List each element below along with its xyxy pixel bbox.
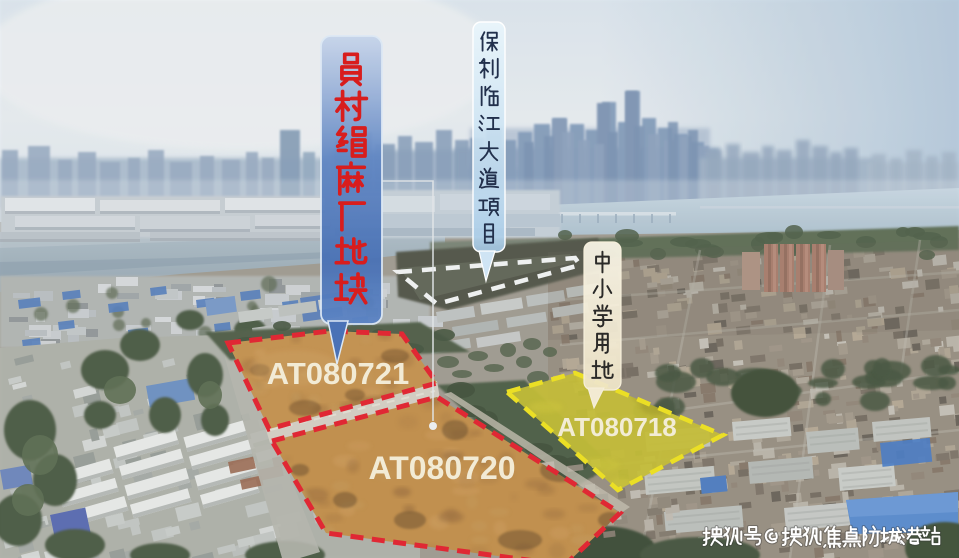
svg-text:AT080720: AT080720 <box>368 450 515 486</box>
svg-text:AT080718: AT080718 <box>557 412 677 442</box>
